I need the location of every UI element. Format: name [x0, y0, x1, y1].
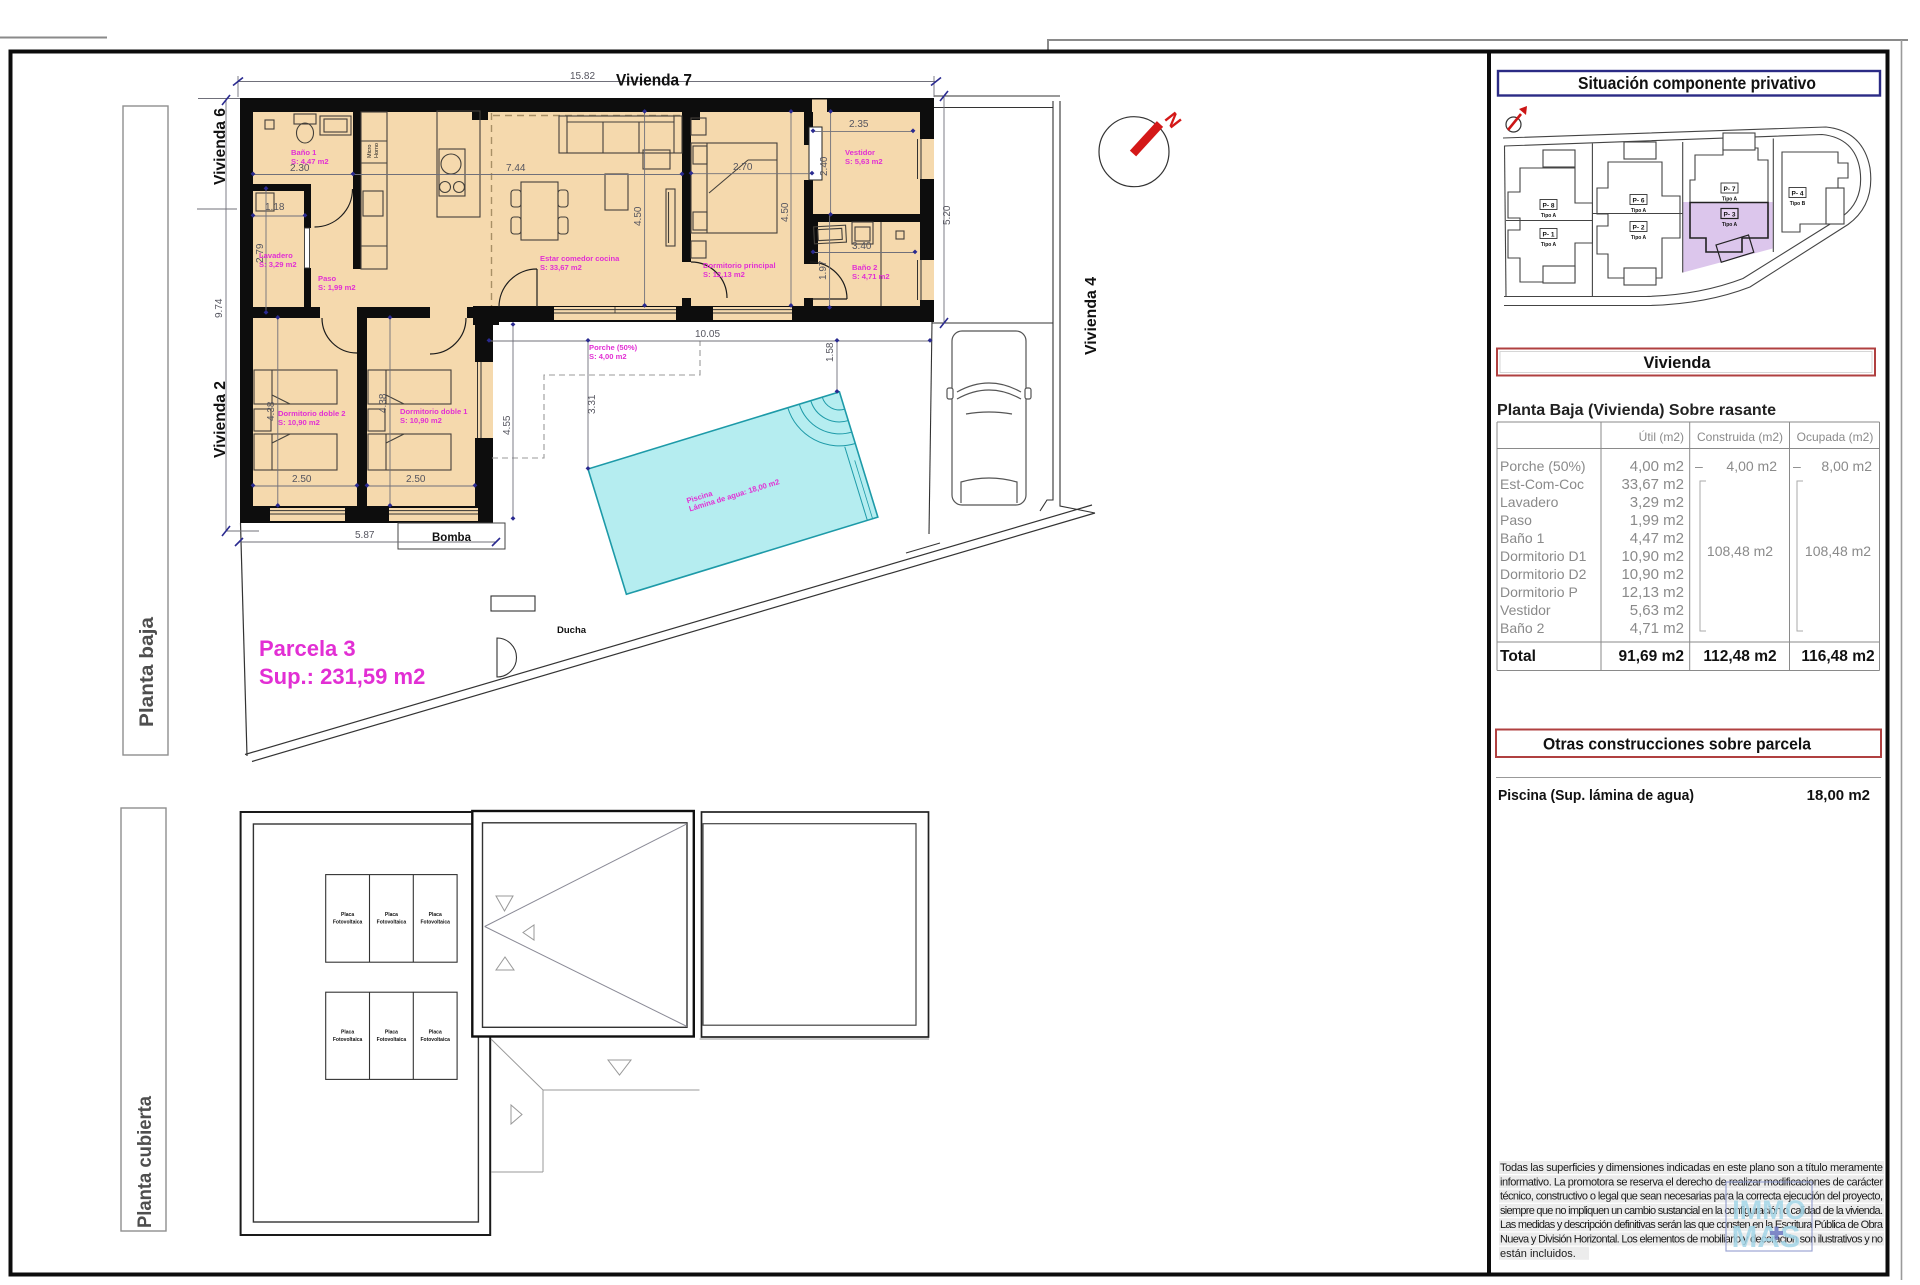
svg-text:8,00 m2: 8,00 m2 [1821, 458, 1872, 474]
svg-text:MAS: MAS [1732, 1219, 1801, 1254]
svg-text:Dormitorio D1: Dormitorio D1 [1500, 548, 1587, 564]
svg-text:Planta baja: Planta baja [137, 617, 158, 727]
svg-text:4.50: 4.50 [780, 202, 791, 222]
svg-text:4.50: 4.50 [633, 206, 644, 226]
svg-text:4.55: 4.55 [502, 415, 513, 435]
svg-text:10,90 m2: 10,90 m2 [1621, 548, 1684, 565]
svg-text:Dormitorio P: Dormitorio P [1500, 584, 1578, 600]
svg-text:10,90 m2: 10,90 m2 [1621, 566, 1684, 583]
svg-text:P- 1: P- 1 [1543, 231, 1555, 238]
svg-text:P- 2: P- 2 [1633, 224, 1645, 231]
svg-text:Otras construcciones sobre par: Otras construcciones sobre parcela [1543, 735, 1812, 754]
svg-text:Fotovoltaica: Fotovoltaica [333, 920, 363, 926]
svg-text:Vivienda 4: Vivienda 4 [1083, 277, 1100, 355]
svg-text:–: – [1695, 458, 1703, 474]
svg-text:1,99 m2: 1,99 m2 [1630, 512, 1684, 529]
svg-text:Micro: Micro [367, 145, 373, 158]
svg-text:Baño 2: Baño 2 [1500, 620, 1545, 636]
svg-text:Paso: Paso [318, 274, 337, 283]
svg-text:Vivienda 7: Vivienda 7 [616, 72, 692, 90]
svg-text:116,48 m2: 116,48 m2 [1801, 648, 1874, 665]
svg-text:Vestidor: Vestidor [1500, 602, 1551, 618]
svg-text:4,00 m2: 4,00 m2 [1726, 458, 1777, 474]
svg-text:5.87: 5.87 [355, 530, 375, 541]
svg-text:12,13 m2: 12,13 m2 [1621, 584, 1684, 601]
svg-text:1.58: 1.58 [825, 342, 836, 362]
svg-text:108,48 m2: 108,48 m2 [1707, 543, 1773, 559]
svg-text:10.05: 10.05 [695, 329, 720, 340]
svg-text:Planta cubierta: Planta cubierta [135, 1096, 156, 1228]
svg-text:Sup.: 231,59 m2: Sup.: 231,59 m2 [259, 664, 425, 689]
svg-text:Tipo A: Tipo A [1631, 235, 1647, 241]
svg-text:Parcela 3: Parcela 3 [259, 636, 356, 661]
svg-text:Fotovoltaica: Fotovoltaica [420, 920, 450, 926]
svg-text:Fotovoltaica: Fotovoltaica [377, 1037, 407, 1043]
svg-text:Útil (m2): Útil (m2) [1639, 429, 1684, 444]
svg-text:–: – [1793, 458, 1801, 474]
svg-text:S: 3,29 m2: S: 3,29 m2 [259, 260, 297, 269]
svg-text:S: 1,99 m2: S: 1,99 m2 [318, 283, 356, 292]
svg-text:18,00 m2: 18,00 m2 [1807, 787, 1870, 804]
svg-text:Ducha: Ducha [557, 625, 587, 636]
svg-text:Todas las superficies y dimens: Todas las superficies y dimensiones indi… [1500, 1162, 1883, 1174]
svg-text:2.35: 2.35 [849, 119, 869, 130]
svg-text:Piscina (Sup. lámina de agua): Piscina (Sup. lámina de agua) [1498, 787, 1694, 804]
svg-text:Vestidor: Vestidor [845, 148, 875, 157]
svg-text:1.97: 1.97 [818, 260, 829, 280]
svg-text:2.50: 2.50 [406, 474, 426, 485]
svg-text:2.40: 2.40 [819, 156, 830, 176]
svg-text:S: 4,00 m2: S: 4,00 m2 [589, 352, 627, 361]
svg-text:Porche (50%): Porche (50%) [589, 343, 638, 352]
svg-text:P- 8: P- 8 [1543, 202, 1555, 209]
svg-text:Porche (50%): Porche (50%) [1500, 458, 1586, 474]
svg-text:Tipo A: Tipo A [1631, 208, 1647, 214]
svg-text:Fotovoltaica: Fotovoltaica [333, 1037, 363, 1043]
svg-text:Tipo B: Tipo B [1790, 201, 1806, 207]
svg-text:S: 10,90 m2: S: 10,90 m2 [400, 416, 442, 425]
svg-text:Planta Baja (Vivienda) Sobre r: Planta Baja (Vivienda) Sobre rasante [1497, 402, 1776, 419]
svg-text:Tipo A: Tipo A [1541, 213, 1557, 219]
svg-text:Vivienda 2: Vivienda 2 [212, 381, 229, 458]
svg-text:Nueva y División Horizontal. L: Nueva y División Horizontal. Los element… [1500, 1234, 1883, 1246]
svg-text:S: 12,13 m2: S: 12,13 m2 [703, 270, 745, 279]
svg-text:están incluidos.: están incluidos. [1500, 1248, 1576, 1260]
svg-text:siempre que no impliquen un ca: siempre que no impliquen un cambio susta… [1500, 1205, 1883, 1217]
svg-text:33,67 m2: 33,67 m2 [1621, 476, 1684, 493]
svg-text:1.18: 1.18 [265, 202, 285, 213]
svg-text:Baño 1: Baño 1 [291, 148, 317, 157]
svg-text:informativo. La promotora se r: informativo. La promotora se reserva el … [1500, 1176, 1883, 1188]
svg-text:S: 5,63 m2: S: 5,63 m2 [845, 157, 883, 166]
svg-text:3.40: 3.40 [852, 241, 872, 252]
svg-text:9.74: 9.74 [214, 298, 225, 318]
svg-text:Estar comedor cocina: Estar comedor cocina [540, 254, 620, 263]
svg-text:Fotovoltaica: Fotovoltaica [377, 920, 407, 926]
svg-text:5.20: 5.20 [942, 205, 953, 225]
svg-text:2.50: 2.50 [292, 474, 312, 485]
svg-text:5,63 m2: 5,63 m2 [1630, 602, 1684, 619]
svg-text:Dormitorio doble 2: Dormitorio doble 2 [278, 409, 346, 418]
svg-text:P- 3: P- 3 [1724, 211, 1736, 218]
svg-text:112,48 m2: 112,48 m2 [1703, 648, 1776, 665]
svg-text:Las medidas y descripción defi: Las medidas y descripción definitivas se… [1500, 1219, 1884, 1231]
svg-text:4,47 m2: 4,47 m2 [1630, 530, 1684, 547]
svg-text:P- 6: P- 6 [1633, 197, 1645, 204]
svg-text:Dormitorio doble 1: Dormitorio doble 1 [400, 407, 468, 416]
svg-text:Est-Com-Coc: Est-Com-Coc [1500, 476, 1584, 492]
svg-text:S: 10,90 m2: S: 10,90 m2 [278, 418, 320, 427]
svg-text:Dormitorio principal: Dormitorio principal [703, 261, 776, 270]
svg-text:Lavadero: Lavadero [259, 251, 293, 260]
svg-text:Total: Total [1500, 648, 1536, 665]
svg-text:S: 4,71 m2: S: 4,71 m2 [852, 272, 890, 281]
svg-text:Vivienda 6: Vivienda 6 [212, 108, 229, 185]
svg-text:Tipo A: Tipo A [1722, 222, 1738, 228]
svg-text:Tipo A: Tipo A [1722, 197, 1738, 203]
svg-text:7.44: 7.44 [506, 163, 526, 174]
svg-text:Placa: Placa [385, 912, 398, 918]
svg-text:Construida (m2): Construida (m2) [1697, 430, 1783, 444]
svg-text:Dormitorio D2: Dormitorio D2 [1500, 566, 1587, 582]
svg-text:Placa: Placa [429, 1030, 442, 1036]
svg-text:Tipo A: Tipo A [1541, 242, 1557, 248]
svg-text:Lavadero: Lavadero [1500, 494, 1559, 510]
svg-text:4,71 m2: 4,71 m2 [1630, 620, 1684, 637]
svg-text:91,69 m2: 91,69 m2 [1619, 648, 1685, 665]
svg-text:4,00 m2: 4,00 m2 [1630, 458, 1684, 475]
svg-text:4.38: 4.38 [378, 393, 389, 413]
svg-text:Situación componente privativo: Situación componente privativo [1578, 73, 1816, 93]
svg-text:Baño 1: Baño 1 [1500, 530, 1545, 546]
svg-text:técnico, constructivo o legal: técnico, constructivo o legal que sean n… [1500, 1191, 1883, 1203]
svg-text:3.31: 3.31 [587, 394, 598, 414]
svg-text:3,29 m2: 3,29 m2 [1630, 494, 1684, 511]
svg-text:4.38: 4.38 [266, 401, 277, 421]
svg-text:Placa: Placa [429, 912, 442, 918]
svg-text:Placa: Placa [385, 1030, 398, 1036]
svg-text:S: 4,47 m2: S: 4,47 m2 [291, 157, 329, 166]
svg-text:Placa: Placa [341, 1030, 354, 1036]
svg-text:Baño 2: Baño 2 [852, 263, 877, 272]
svg-text:Vivienda: Vivienda [1644, 353, 1712, 372]
svg-text:15.82: 15.82 [570, 71, 595, 82]
svg-text:Fotovoltaica: Fotovoltaica [420, 1037, 450, 1043]
svg-text:P- 4: P- 4 [1792, 190, 1804, 197]
svg-text:P- 7: P- 7 [1724, 186, 1736, 193]
svg-text:2.70: 2.70 [733, 162, 753, 173]
svg-text:Paso: Paso [1500, 512, 1532, 528]
svg-text:S: 33,67 m2: S: 33,67 m2 [540, 263, 582, 272]
svg-text:108,48 m2: 108,48 m2 [1805, 543, 1871, 559]
svg-text:Placa: Placa [341, 912, 354, 918]
svg-text:Horno: Horno [374, 143, 380, 158]
svg-text:Ocupada (m2): Ocupada (m2) [1797, 430, 1874, 444]
